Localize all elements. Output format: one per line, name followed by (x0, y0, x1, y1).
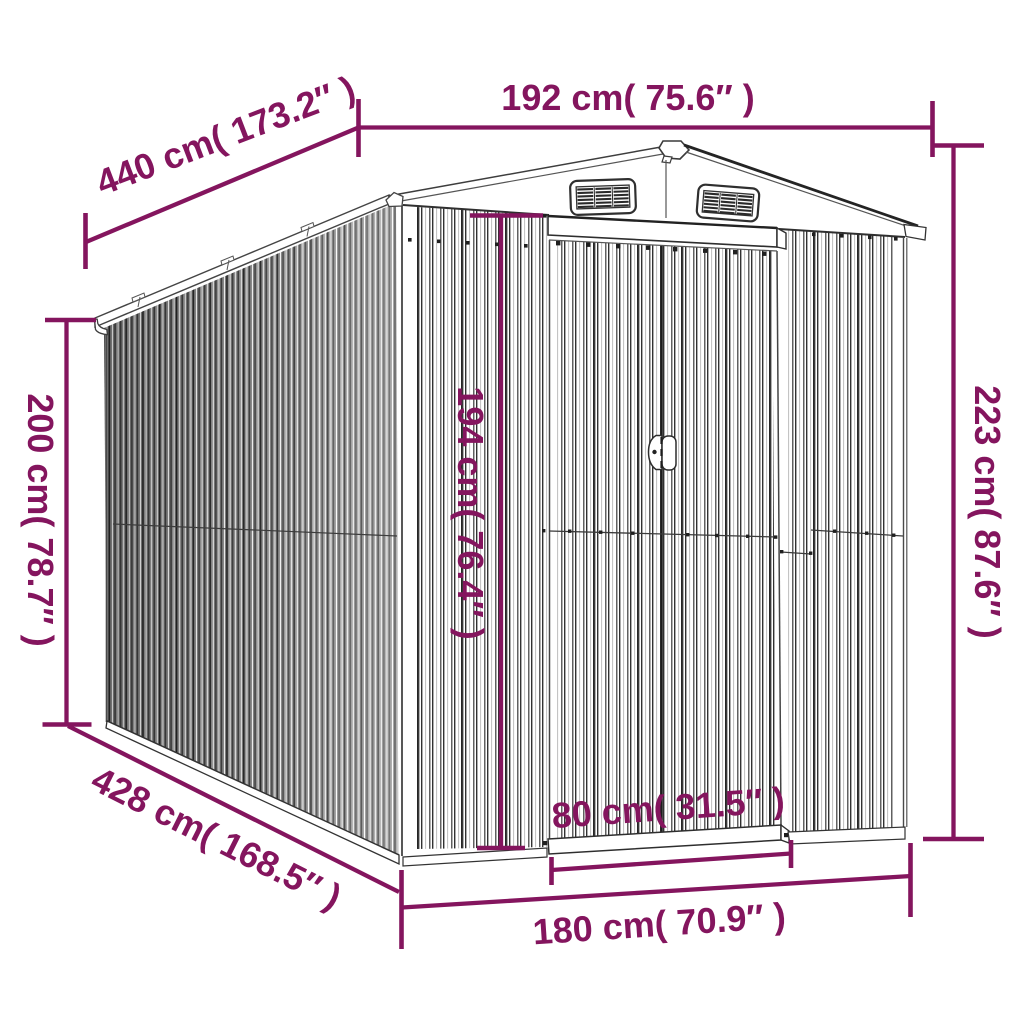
svg-text:192 cm( 75.6″ ): 192 cm( 75.6″ ) (501, 77, 754, 118)
svg-text:223 cm( 87.6″ ): 223 cm( 87.6″ ) (967, 385, 1008, 638)
svg-text:200 cm( 78.7″ ): 200 cm( 78.7″ ) (20, 393, 61, 646)
svg-text:194 cm( 76.4″ ): 194 cm( 76.4″ ) (450, 386, 491, 639)
